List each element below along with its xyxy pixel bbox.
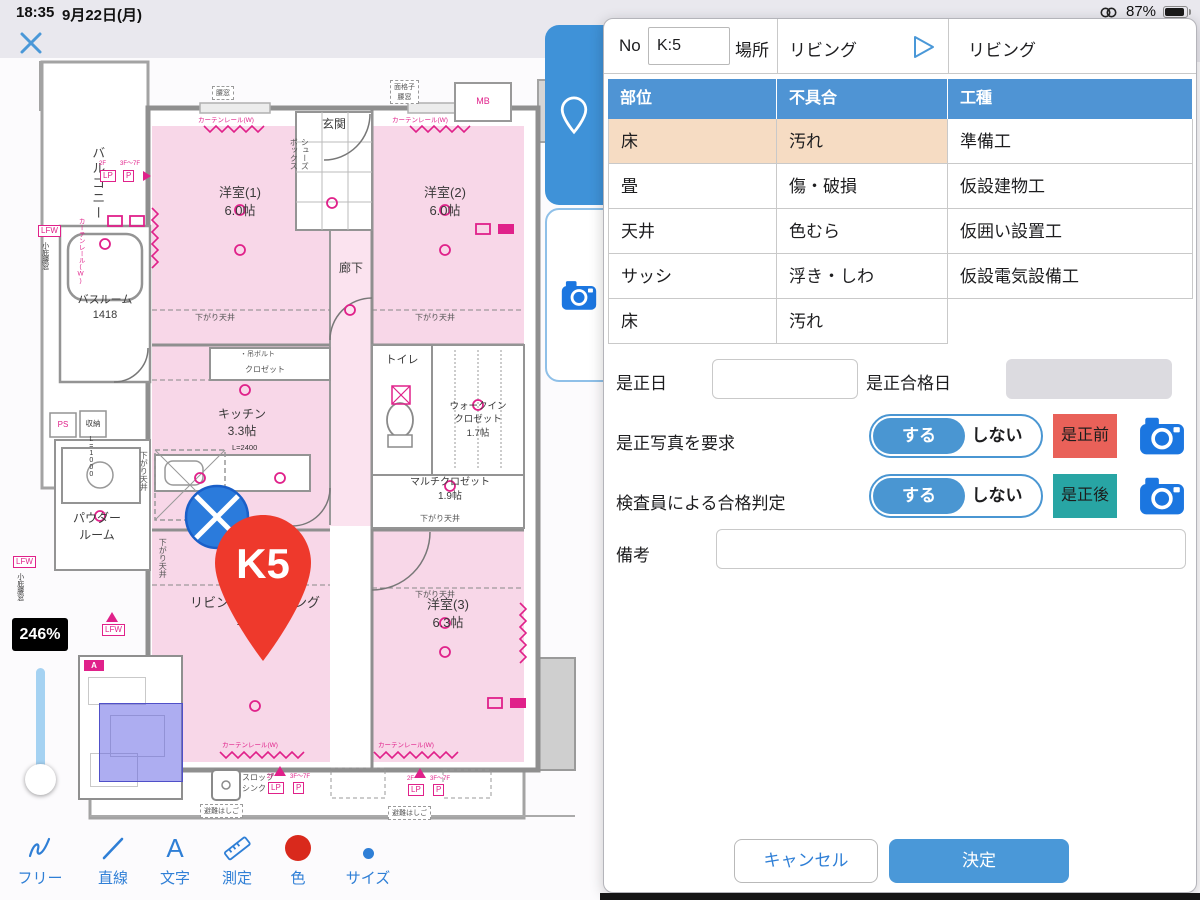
place-value[interactable]: リビング	[789, 36, 857, 61]
label-entrance: 玄関	[296, 116, 372, 133]
label-small-window: 小庇腰窓	[15, 573, 25, 601]
camera-icon	[561, 279, 597, 312]
label-curtain-rail: カーテンレール(W)	[198, 116, 254, 125]
label-lp-marker: LP	[100, 170, 116, 182]
label-2f: 2F	[267, 773, 274, 781]
label-escape-hatch: 避難はしご	[200, 804, 243, 818]
label-lowered-ceiling: 下がり天井	[157, 538, 168, 578]
label-lfw-marker: LFW	[38, 225, 61, 237]
label-curtain-rail: カーテンレール(W)	[392, 116, 448, 125]
label-lowered-ceiling: 下がり天井	[415, 589, 455, 600]
table-cell[interactable]: 準備工	[948, 119, 1193, 164]
label-corridor: 廊下	[328, 260, 374, 277]
tool-straight-line[interactable]: 直線	[78, 832, 148, 894]
label-curtain-rail: カーテンレール(W)	[222, 741, 278, 750]
label-escape-hatch: 避難はしご	[388, 806, 431, 820]
place-label: 場所	[735, 36, 769, 61]
label-lowered-ceiling: 下がり天井	[138, 451, 149, 491]
minimap-a-chip: A	[84, 660, 104, 671]
toggle-on-option[interactable]: する	[873, 478, 965, 514]
remarks-input[interactable]	[716, 529, 1186, 569]
minimap[interactable]: A	[78, 655, 183, 800]
tool-measure[interactable]: 測定	[202, 832, 272, 894]
map-pin-k5[interactable]: K5	[215, 515, 311, 661]
label-lfw-marker: LFW	[13, 556, 36, 568]
table-cell[interactable]: 畳	[608, 164, 777, 209]
label-kitchen: キッチン 3.3帖	[202, 406, 282, 440]
table-cell[interactable]: 仮囲い設置工	[948, 209, 1193, 254]
no-input[interactable]	[648, 27, 730, 65]
map-pin-label: K5	[236, 540, 290, 587]
tool-text[interactable]: A 文字	[140, 832, 210, 894]
table-cell[interactable]: 浮き・しわ	[777, 254, 948, 299]
judgement-label: 検査員による合格判定	[616, 489, 786, 514]
toggle-off-option[interactable]: しない	[967, 478, 1027, 514]
label-menkoshi: 面格子 腰窓	[390, 80, 419, 104]
photo-request-label: 是正写真を要求	[616, 429, 735, 454]
label-bathroom: バスルーム 1418	[70, 293, 140, 324]
label-room2: 洋室(2) 6.0帖	[395, 184, 495, 220]
after-correction-button[interactable]: 是正後	[1053, 474, 1117, 518]
col-header-defect: 不具合	[777, 79, 948, 119]
toggle-off-option[interactable]: しない	[967, 418, 1027, 454]
tool-size[interactable]: サイズ	[333, 832, 403, 894]
correction-pass-date-label: 是正合格日	[866, 369, 951, 394]
ruler-icon	[221, 832, 253, 864]
label-curtain-rail: カーテンレール(W)	[76, 218, 85, 285]
photo-request-toggle: する しない	[869, 414, 1043, 458]
table-cell[interactable]: 汚れ	[777, 119, 948, 164]
free-draw-icon	[25, 832, 55, 864]
col-header-part: 部位	[608, 79, 777, 119]
label-room1: 洋室(1) 6.0帖	[190, 184, 290, 220]
correction-pass-date-field	[1006, 359, 1172, 399]
location-pin-icon	[559, 95, 589, 135]
table-cell-empty	[948, 299, 1193, 344]
label-shoes-box: シューズ ボックス	[288, 138, 310, 170]
inspection-form-panel: No 場所 リビング リビング 部位 不具合 工種 床 汚れ 準備工 畳 傷・破…	[603, 18, 1197, 893]
minimap-viewport[interactable]	[99, 703, 183, 782]
label-mb: MB	[455, 95, 511, 108]
label-p-marker: P	[123, 170, 134, 182]
label-l1000: L=1000	[86, 436, 96, 478]
table-cell[interactable]: 床	[608, 119, 777, 164]
zoom-level-badge: 246%	[12, 618, 68, 651]
tool-free-draw[interactable]: フリー	[5, 832, 75, 894]
label-room3: 洋室(3) 6.3帖	[398, 596, 498, 632]
table-cell[interactable]: 仮設建物工	[948, 164, 1193, 209]
label-balcony: バルコニー	[88, 146, 106, 221]
tool-color[interactable]: 色	[263, 832, 333, 894]
judgement-toggle: する しない	[869, 474, 1043, 518]
table-cell[interactable]: サッシ	[608, 254, 777, 299]
label-lp-marker: LP	[408, 784, 424, 796]
label-lowered-ceiling: 下がり天井	[415, 312, 455, 323]
modal-bottom-edge	[600, 893, 1200, 900]
close-icon[interactable]	[18, 30, 44, 56]
label-lowered-ceiling: 下がり天井	[420, 513, 460, 524]
form-header-row: No 場所 リビング リビング	[604, 19, 1196, 74]
label-koshimado: 腰窓	[212, 86, 234, 100]
cancel-button[interactable]: キャンセル	[734, 839, 878, 883]
no-label: No	[619, 36, 641, 56]
floor-plan-canvas[interactable]: バルコニー 洋室(1) 6.0帖 洋室(2) 6.0帖 玄関 シューズ ボックス…	[0, 58, 600, 820]
label-3-7f: 3F〜7F	[430, 775, 450, 783]
label-3-7f: 3F〜7F	[290, 773, 310, 781]
correction-date-input[interactable]	[712, 359, 858, 399]
text-icon: A	[166, 833, 183, 863]
label-2f: 2F	[99, 160, 106, 168]
label-powder-room: パウダー ルーム	[57, 510, 137, 544]
place-value-right: リビング	[968, 36, 1036, 61]
color-swatch-icon	[285, 835, 311, 861]
table-cell[interactable]: 床	[608, 299, 777, 344]
confirm-button[interactable]: 決定	[889, 839, 1069, 883]
remarks-label: 備考	[616, 541, 650, 566]
label-closet: クロゼット	[245, 364, 285, 375]
label-l2400: L=2400	[232, 443, 257, 454]
label-2f: 2F	[407, 775, 414, 783]
camera-after-icon[interactable]	[1139, 474, 1185, 517]
label-lowered-ceiling: 下がり天井	[195, 312, 235, 323]
label-lp-marker: LP	[268, 782, 284, 794]
toggle-on-option[interactable]: する	[873, 418, 965, 454]
label-toilet: トイレ	[372, 353, 432, 368]
label-storage: 収納	[80, 419, 106, 430]
label-3-7f: 3F〜7F	[120, 160, 140, 168]
label-curtain-rail: カーテンレール(W)	[378, 741, 434, 750]
label-ps: PS	[50, 419, 76, 430]
table-cell[interactable]: 色むら	[777, 209, 948, 254]
app-screen: 18:35 9月22日(月) 87%	[0, 0, 1200, 900]
size-dot-icon	[363, 848, 374, 859]
defect-table: 部位 不具合 工種 床 汚れ 準備工 畳 傷・破損 仮設建物工 天井 色むら 仮…	[608, 79, 1193, 344]
play-triangle-icon[interactable]	[912, 34, 936, 60]
col-header-worktype: 工種	[948, 79, 1193, 119]
label-hanging-bolt: ・吊ボルト	[240, 350, 275, 360]
camera-before-icon[interactable]	[1139, 414, 1185, 457]
label-p-marker: P	[293, 782, 304, 794]
status-time: 18:35	[16, 4, 54, 21]
label-lfw-marker: LFW	[102, 624, 125, 636]
correction-date-label: 是正日	[616, 369, 667, 394]
label-small-window: 小庇腰窓	[40, 242, 50, 270]
table-cell[interactable]: 天井	[608, 209, 777, 254]
table-cell[interactable]: 傷・破損	[777, 164, 948, 209]
before-correction-button[interactable]: 是正前	[1053, 414, 1117, 458]
zoom-slider-thumb[interactable]	[25, 764, 56, 795]
line-icon	[98, 832, 128, 864]
table-cell[interactable]: 汚れ	[777, 299, 948, 344]
label-walk-in-closet: ウォークイン クロゼット 1.7帖	[438, 400, 518, 440]
drawing-toolbar: フリー 直線 A 文字 測定 色	[0, 820, 600, 900]
battery-icon	[1163, 6, 1188, 18]
status-date: 9月22日(月)	[62, 4, 142, 25]
label-multi-closet: マルチクロゼット 1.9帖	[385, 476, 515, 504]
table-cell[interactable]: 仮設電気設備工	[948, 254, 1193, 299]
label-p-marker: P	[433, 784, 444, 796]
